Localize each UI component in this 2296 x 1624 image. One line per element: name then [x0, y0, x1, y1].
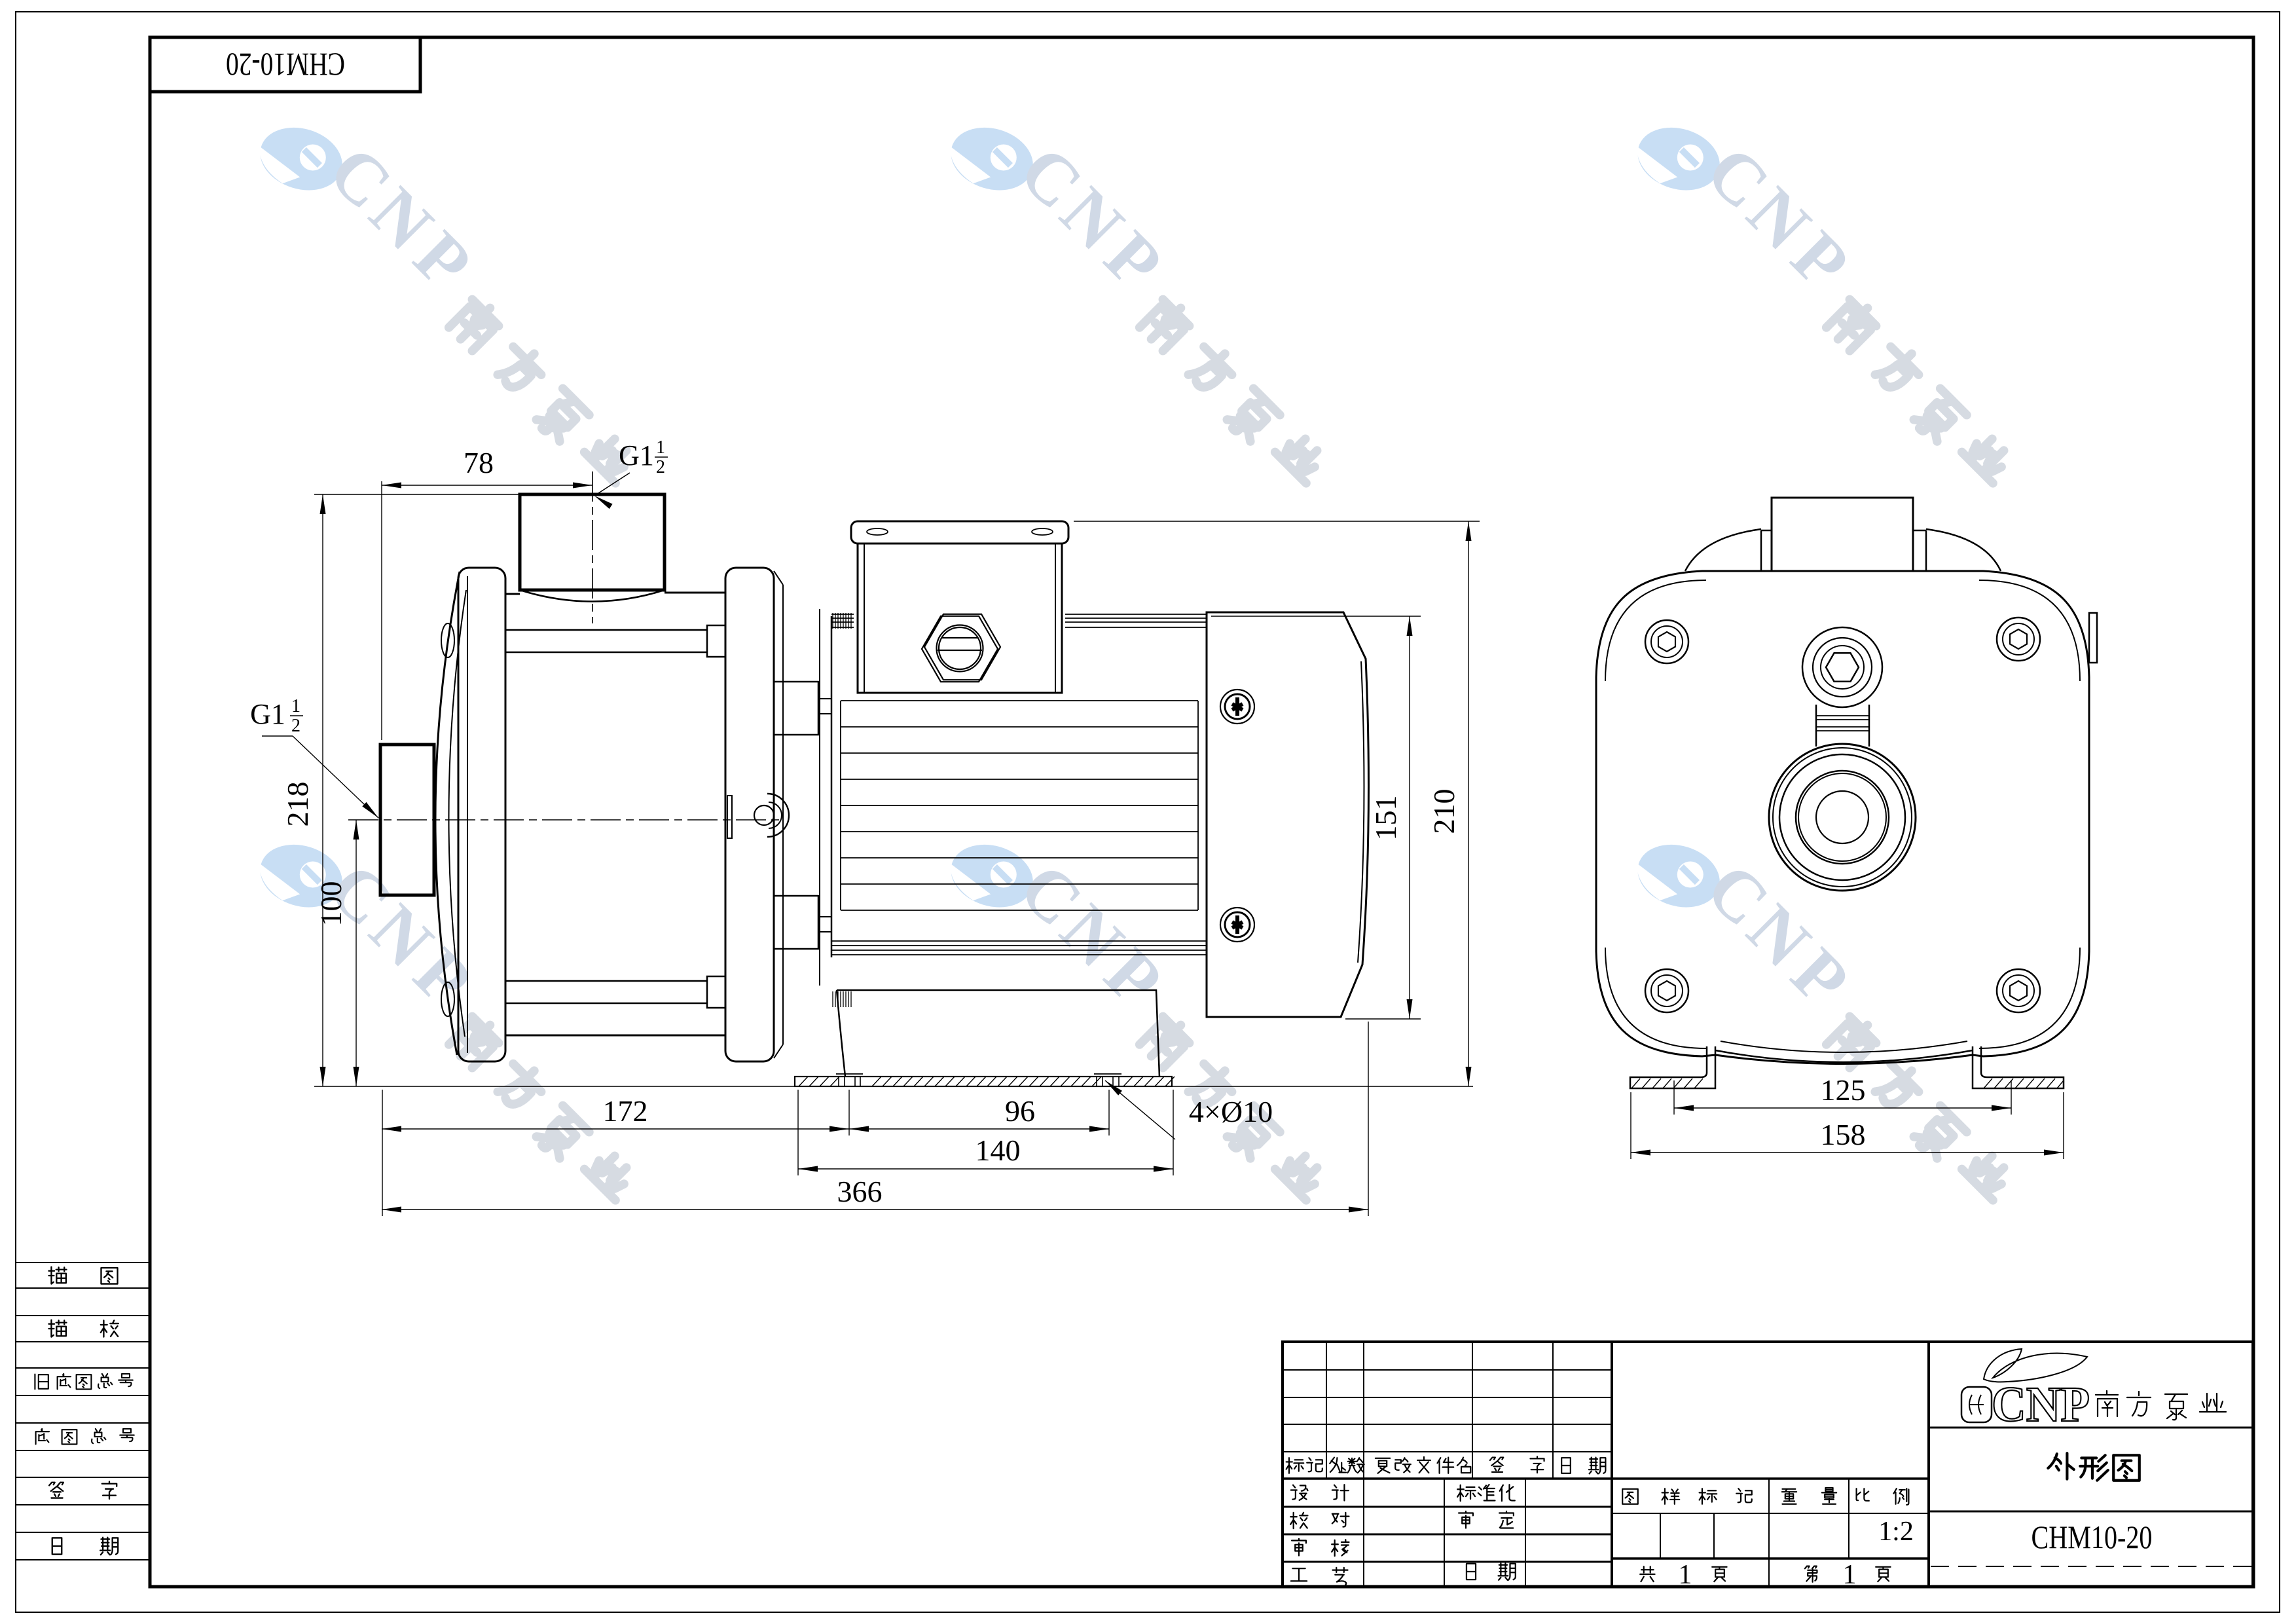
svg-text:G1: G1	[250, 698, 285, 730]
svg-text:CHM10-20: CHM10-20	[2032, 1519, 2153, 1555]
svg-text:100: 100	[314, 881, 348, 927]
svg-text:2: 2	[291, 716, 301, 736]
svg-text:G1: G1	[619, 439, 654, 471]
svg-text:1: 1	[1679, 1560, 1692, 1590]
svg-text:2: 2	[656, 457, 665, 477]
svg-text:96: 96	[1005, 1094, 1035, 1128]
svg-text:CNP: CNP	[1992, 1377, 2090, 1432]
svg-text:CHM10-20: CHM10-20	[226, 46, 345, 83]
svg-text:172: 172	[603, 1094, 648, 1128]
svg-text:210: 210	[1427, 789, 1461, 834]
svg-text:140: 140	[975, 1134, 1021, 1167]
svg-text:125: 125	[1821, 1073, 1866, 1107]
svg-text:1:2: 1:2	[1878, 1517, 1914, 1547]
svg-text:151: 151	[1369, 796, 1402, 841]
svg-text:366: 366	[837, 1175, 883, 1208]
svg-text:4×Ø10: 4×Ø10	[1189, 1095, 1273, 1128]
svg-text:1: 1	[656, 437, 665, 458]
svg-text:78: 78	[464, 446, 494, 479]
svg-text:158: 158	[1821, 1118, 1866, 1151]
svg-text:1: 1	[291, 696, 301, 716]
svg-text:218: 218	[281, 782, 314, 827]
svg-text:1: 1	[1843, 1560, 1857, 1590]
